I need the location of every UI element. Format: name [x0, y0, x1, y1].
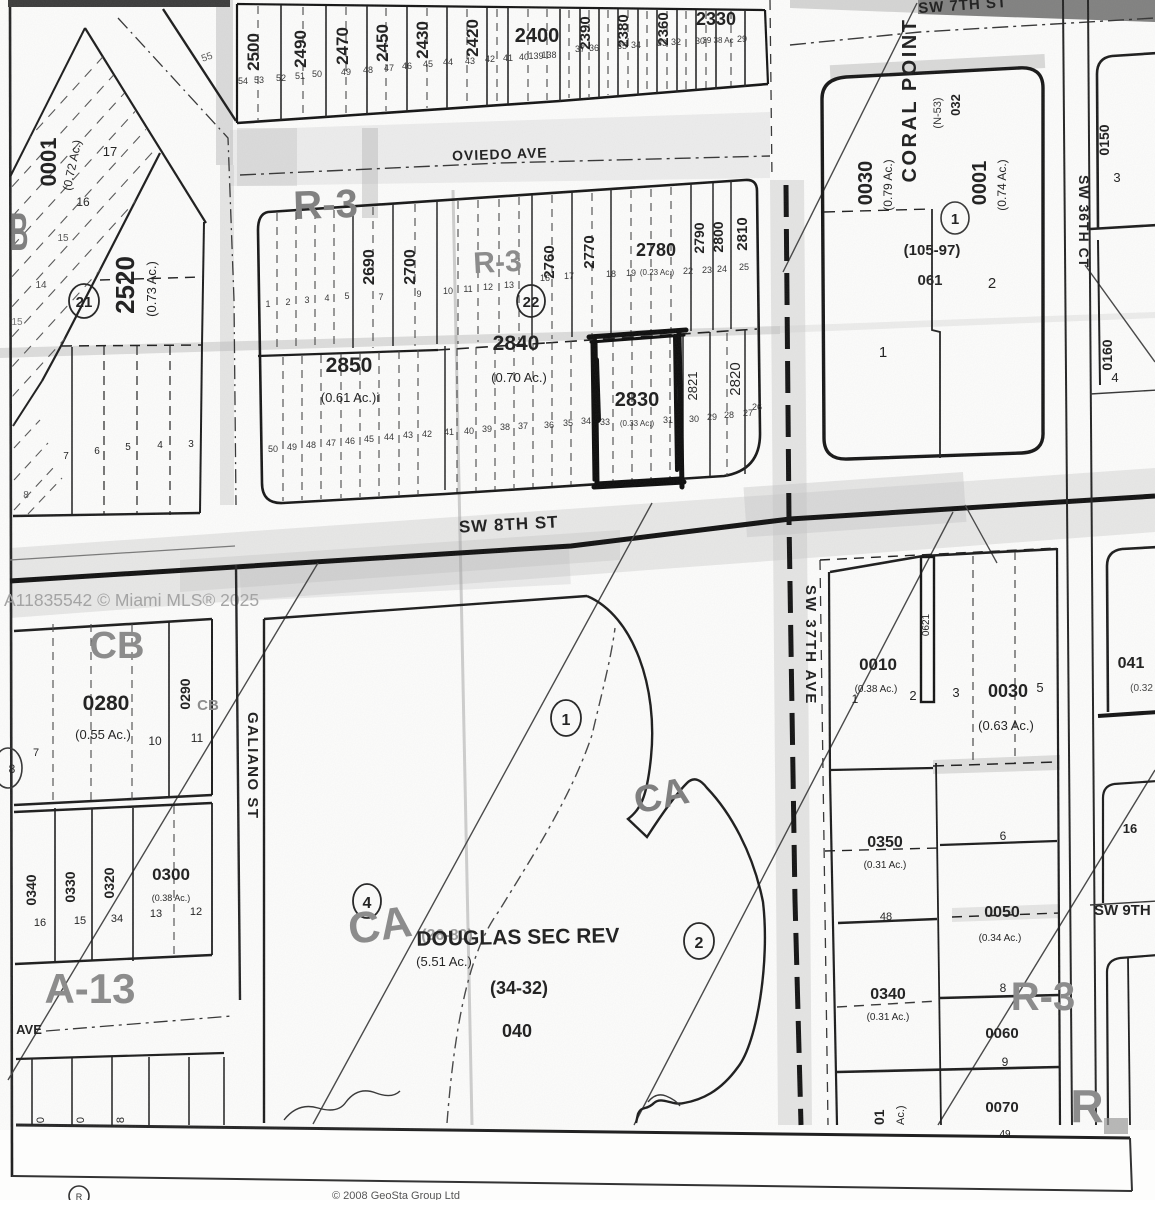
svg-text:R: R [76, 1192, 83, 1200]
svg-text:© 2008 GeoSta Group Ltd: © 2008 GeoSta Group Ltd [332, 1190, 460, 1200]
svg-text:49: 49 [999, 1129, 1011, 1140]
